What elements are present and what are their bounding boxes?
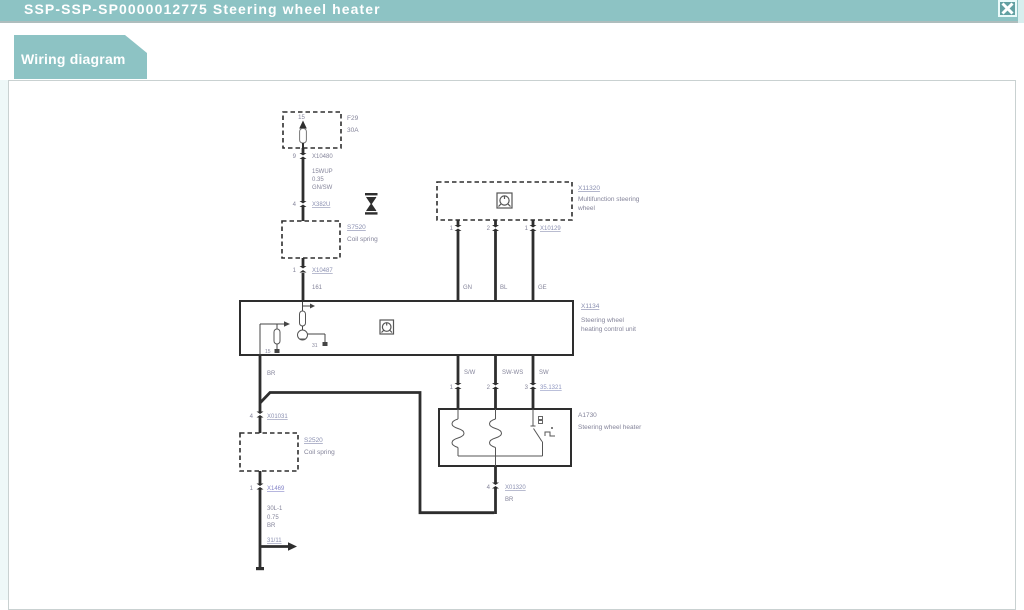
svg-text:2: 2 [487, 226, 491, 232]
svg-text:X10480: X10480 [312, 154, 333, 160]
svg-text:4: 4 [250, 414, 254, 420]
svg-text:BR: BR [505, 497, 514, 503]
svg-text:S/W: S/W [464, 370, 476, 376]
svg-text:X01320: X01320 [505, 485, 526, 491]
svg-text:15: 15 [265, 349, 271, 355]
svg-text:GN: GN [463, 285, 472, 291]
svg-text:9: 9 [293, 154, 297, 160]
svg-text:A1730: A1730 [578, 412, 597, 419]
svg-text:31: 31 [312, 343, 318, 349]
svg-text:1: 1 [525, 226, 529, 232]
svg-text:SW: SW [539, 370, 549, 376]
svg-text:0.35: 0.35 [312, 177, 324, 183]
svg-text:BL: BL [500, 285, 508, 291]
svg-text:3: 3 [525, 385, 529, 391]
svg-text:heating control unit: heating control unit [581, 326, 636, 333]
svg-text:1: 1 [450, 385, 454, 391]
svg-text:1: 1 [250, 486, 254, 492]
svg-text:1: 1 [293, 268, 297, 274]
svg-text:X10487: X10487 [312, 268, 333, 274]
svg-text:30A: 30A [347, 127, 359, 134]
svg-text:1: 1 [450, 226, 454, 232]
svg-text:F29: F29 [347, 115, 359, 122]
svg-text:BR: BR [267, 523, 276, 529]
svg-text:wheel: wheel [577, 205, 596, 212]
svg-text:15WUP: 15WUP [312, 169, 333, 175]
svg-text:Steering wheel: Steering wheel [581, 317, 625, 324]
svg-text:X10129: X10129 [540, 226, 561, 232]
svg-text:31/11: 31/11 [267, 538, 282, 544]
svg-text:S2520: S2520 [304, 437, 323, 444]
svg-text:GN/SW: GN/SW [312, 185, 333, 191]
svg-text:2: 2 [487, 385, 491, 391]
svg-text:Multifunction steering: Multifunction steering [578, 196, 640, 203]
svg-text:15: 15 [298, 115, 305, 121]
svg-text:X1469: X1469 [267, 486, 285, 492]
svg-text:X01031: X01031 [267, 414, 288, 420]
svg-text:X1134: X1134 [581, 303, 600, 310]
svg-text:Coil spring: Coil spring [347, 236, 378, 243]
svg-text:0.75: 0.75 [267, 515, 279, 521]
svg-text:30L-1: 30L-1 [267, 506, 283, 512]
svg-text:SW-WS: SW-WS [502, 370, 523, 376]
svg-text:4: 4 [293, 202, 297, 208]
svg-text:Coil spring: Coil spring [304, 449, 335, 456]
svg-text:Steering wheel heater: Steering wheel heater [578, 424, 642, 431]
svg-text:BR: BR [267, 371, 276, 377]
svg-text:S7520: S7520 [347, 224, 366, 231]
svg-text:35.1321: 35.1321 [540, 385, 562, 391]
svg-text:4: 4 [487, 485, 491, 491]
svg-text:X382U: X382U [312, 202, 330, 208]
svg-text:161: 161 [312, 285, 323, 291]
svg-text:X11320: X11320 [578, 185, 600, 192]
svg-text:GE: GE [538, 285, 547, 291]
